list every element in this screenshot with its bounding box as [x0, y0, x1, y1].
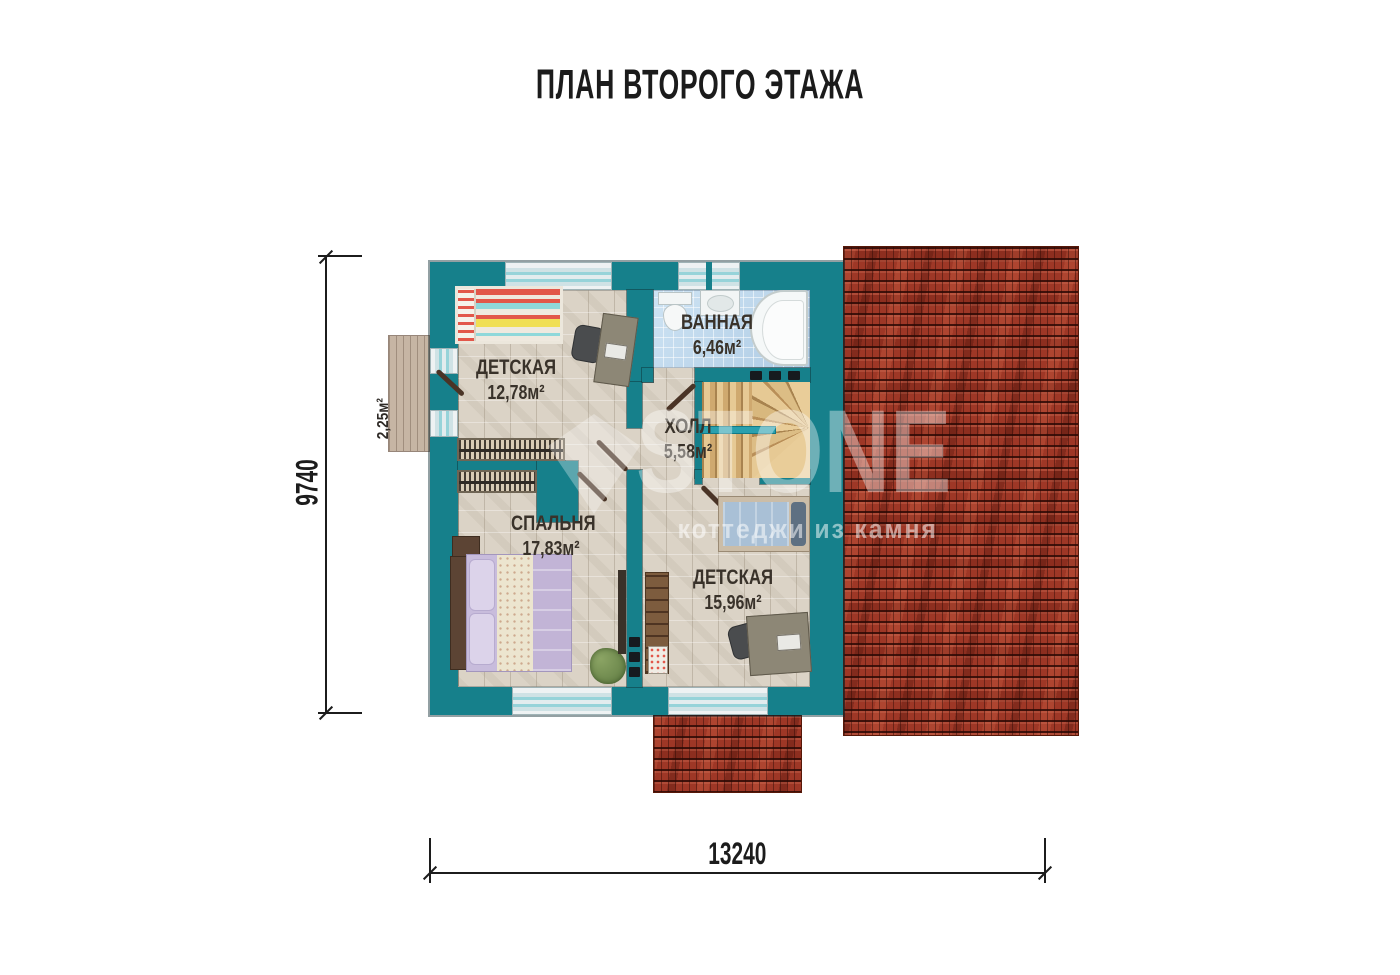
floor-plan-canvas: ПЛАН ВТОРОГО ЭТАЖА 2,25м² — [0, 0, 1400, 975]
bathtub-basin — [762, 300, 804, 360]
dim-ext-left — [429, 838, 431, 883]
wardrobe-bar — [459, 481, 535, 484]
roof-right — [843, 246, 1079, 736]
bedroom-pillow — [469, 613, 495, 665]
bedroom-pillow — [469, 559, 495, 611]
balcony-area-label: 2,25м² — [372, 392, 396, 462]
nursery2-pillow — [791, 502, 806, 546]
vent-icon — [629, 652, 640, 662]
wall-stairs-bottom-left — [695, 470, 702, 484]
nursery2-blanket — [723, 502, 789, 546]
nursery1-bed — [455, 286, 563, 344]
nursery2-monitor — [776, 633, 801, 651]
window-left-2 — [430, 410, 458, 437]
wall-bathroom-bottom-left — [642, 368, 653, 382]
vent-icon — [769, 371, 781, 380]
vent-icon — [788, 371, 800, 380]
nursery2-mini-shelf — [648, 646, 668, 674]
dim-ext-right — [1044, 838, 1046, 883]
dim-value-horizontal: 13240 — [657, 838, 817, 871]
label-bathroom: ВАННАЯ 6,46м² — [667, 310, 767, 361]
roof-bottom — [653, 713, 802, 793]
vent-icon — [629, 637, 640, 647]
window-mullion — [706, 262, 712, 290]
label-nursery2: ДЕТСКАЯ 15,96м² — [683, 565, 783, 616]
vent-icon — [629, 667, 640, 677]
wardrobe-bar — [459, 449, 563, 452]
window-left-1 — [430, 348, 458, 374]
nursery1-pillow — [458, 289, 476, 341]
bedroom-wardrobe-rail — [457, 470, 537, 493]
nursery1-monitor — [604, 343, 628, 361]
window-bottom-1 — [512, 687, 612, 715]
nursery2-desk — [746, 612, 812, 676]
page-title: ПЛАН ВТОРОГО ЭТАЖА — [0, 64, 1400, 106]
label-hall: ХОЛЛ 5,58м² — [638, 414, 738, 465]
nursery1-wardrobe-rail — [457, 438, 565, 461]
bedroom-quilt — [533, 555, 571, 671]
label-nursery1: ДЕТСКАЯ 12,78м² — [466, 355, 566, 406]
dim-value-vertical: 9740 — [268, 452, 348, 512]
building-outline — [430, 262, 843, 715]
vent-icon — [750, 371, 762, 380]
nursery2-bed — [718, 496, 810, 552]
bedroom-bed — [466, 554, 572, 672]
label-bedroom: СПАЛЬНЯ 17,83м² — [501, 511, 601, 562]
tv-panel — [618, 570, 626, 654]
window-bottom-2 — [668, 687, 768, 715]
bedroom-throw-blanket — [497, 555, 533, 671]
